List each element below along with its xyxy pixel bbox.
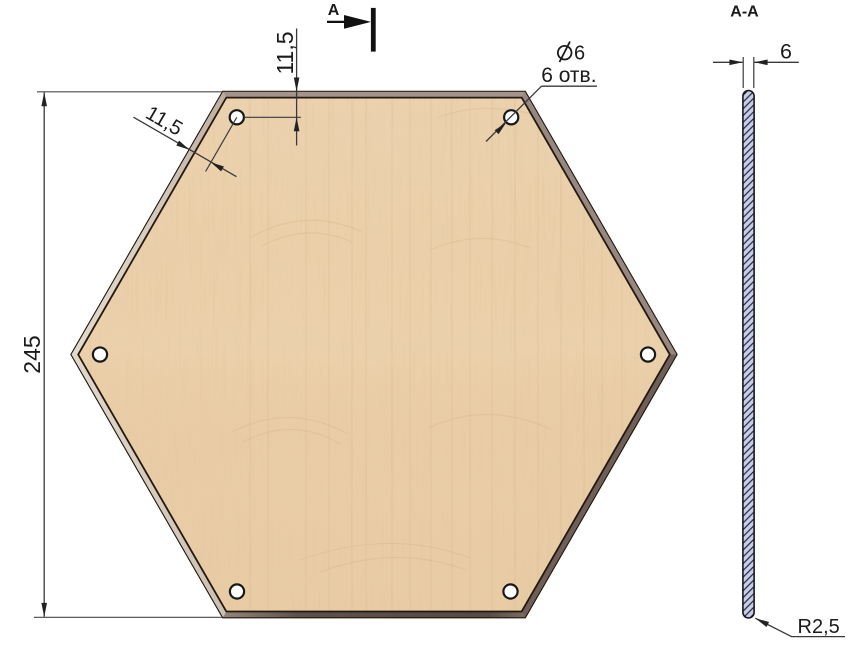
svg-text:6 отв.: 6 отв. [541,64,596,87]
svg-text:245: 245 [19,335,45,373]
svg-text:A: A [328,2,340,19]
svg-text:A-A: A-A [730,3,759,20]
svg-text:R2,5: R2,5 [798,616,840,638]
svg-text:6: 6 [574,42,585,64]
svg-text:11,5: 11,5 [272,31,298,74]
svg-text:6: 6 [780,40,792,64]
